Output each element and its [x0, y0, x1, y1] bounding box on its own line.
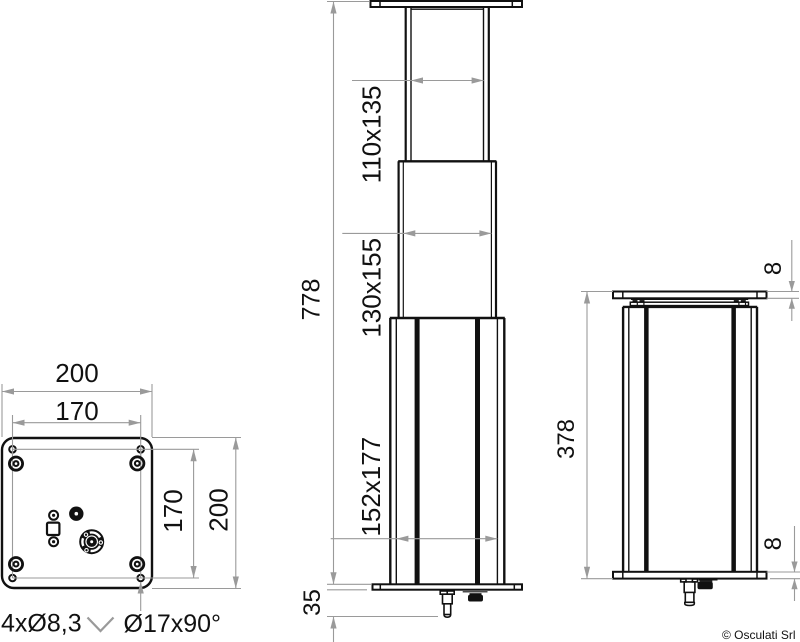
svg-text:152x177: 152x177: [356, 437, 386, 537]
svg-text:4xØ8,3: 4xØ8,3: [1, 609, 82, 637]
svg-text:35: 35: [299, 589, 326, 616]
svg-text:8: 8: [760, 262, 787, 275]
svg-text:200: 200: [55, 358, 98, 388]
svg-text:170: 170: [158, 489, 188, 532]
svg-text:© Osculati Srl: © Osculati Srl: [722, 628, 796, 642]
svg-text:200: 200: [203, 488, 233, 531]
svg-text:378: 378: [553, 419, 580, 459]
svg-text:778: 778: [298, 279, 326, 321]
svg-text:130x155: 130x155: [356, 238, 386, 338]
svg-text:110x135: 110x135: [357, 85, 387, 183]
svg-text:Ø17x90°: Ø17x90°: [124, 610, 222, 638]
svg-text:170: 170: [55, 396, 98, 426]
svg-text:8: 8: [760, 537, 787, 550]
